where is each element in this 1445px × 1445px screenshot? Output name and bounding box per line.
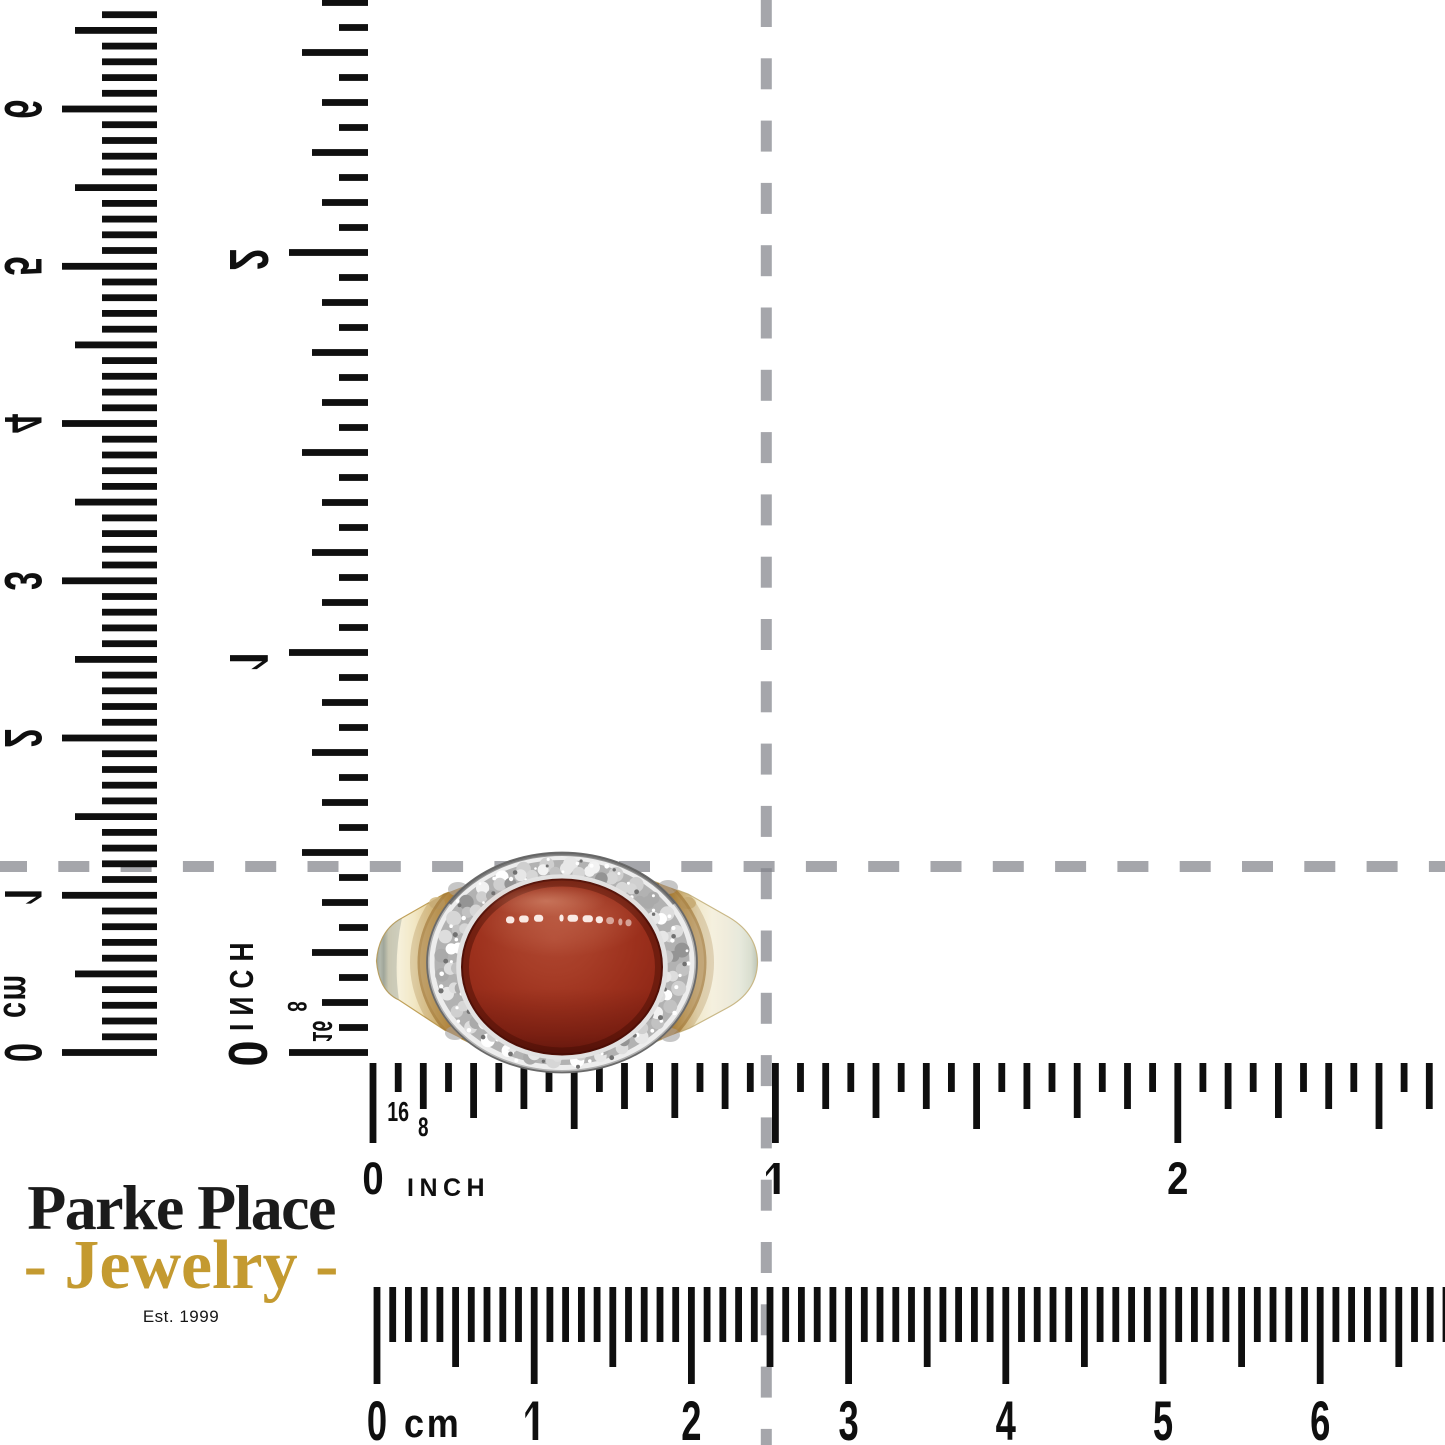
svg-text:3: 3 bbox=[838, 1390, 858, 1445]
svg-text:8: 8 bbox=[282, 1001, 312, 1012]
svg-text:4: 4 bbox=[0, 414, 51, 433]
svg-text:4: 4 bbox=[996, 1390, 1016, 1445]
svg-text:2: 2 bbox=[1167, 1153, 1188, 1204]
svg-text:cm: cm bbox=[404, 1402, 461, 1445]
svg-text:0: 0 bbox=[362, 1153, 383, 1204]
svg-text:3: 3 bbox=[0, 571, 51, 590]
svg-text:2: 2 bbox=[217, 248, 278, 270]
svg-text:2: 2 bbox=[681, 1390, 701, 1445]
svg-text:cm: cm bbox=[0, 973, 40, 1018]
svg-text:16: 16 bbox=[387, 1097, 409, 1128]
svg-text:5: 5 bbox=[0, 257, 51, 276]
svg-text:0: 0 bbox=[367, 1390, 387, 1445]
svg-text:INCH: INCH bbox=[407, 1174, 490, 1202]
svg-text:INCH: INCH bbox=[222, 934, 258, 1031]
svg-text:16: 16 bbox=[306, 1021, 337, 1043]
svg-text:5: 5 bbox=[1153, 1390, 1173, 1445]
svg-text:6: 6 bbox=[1310, 1390, 1330, 1445]
svg-text:8: 8 bbox=[418, 1112, 429, 1142]
svg-text:2: 2 bbox=[0, 728, 51, 747]
svg-text:0: 0 bbox=[0, 1043, 51, 1062]
svg-text:6: 6 bbox=[0, 99, 51, 118]
svg-text:0: 0 bbox=[217, 1040, 278, 1066]
